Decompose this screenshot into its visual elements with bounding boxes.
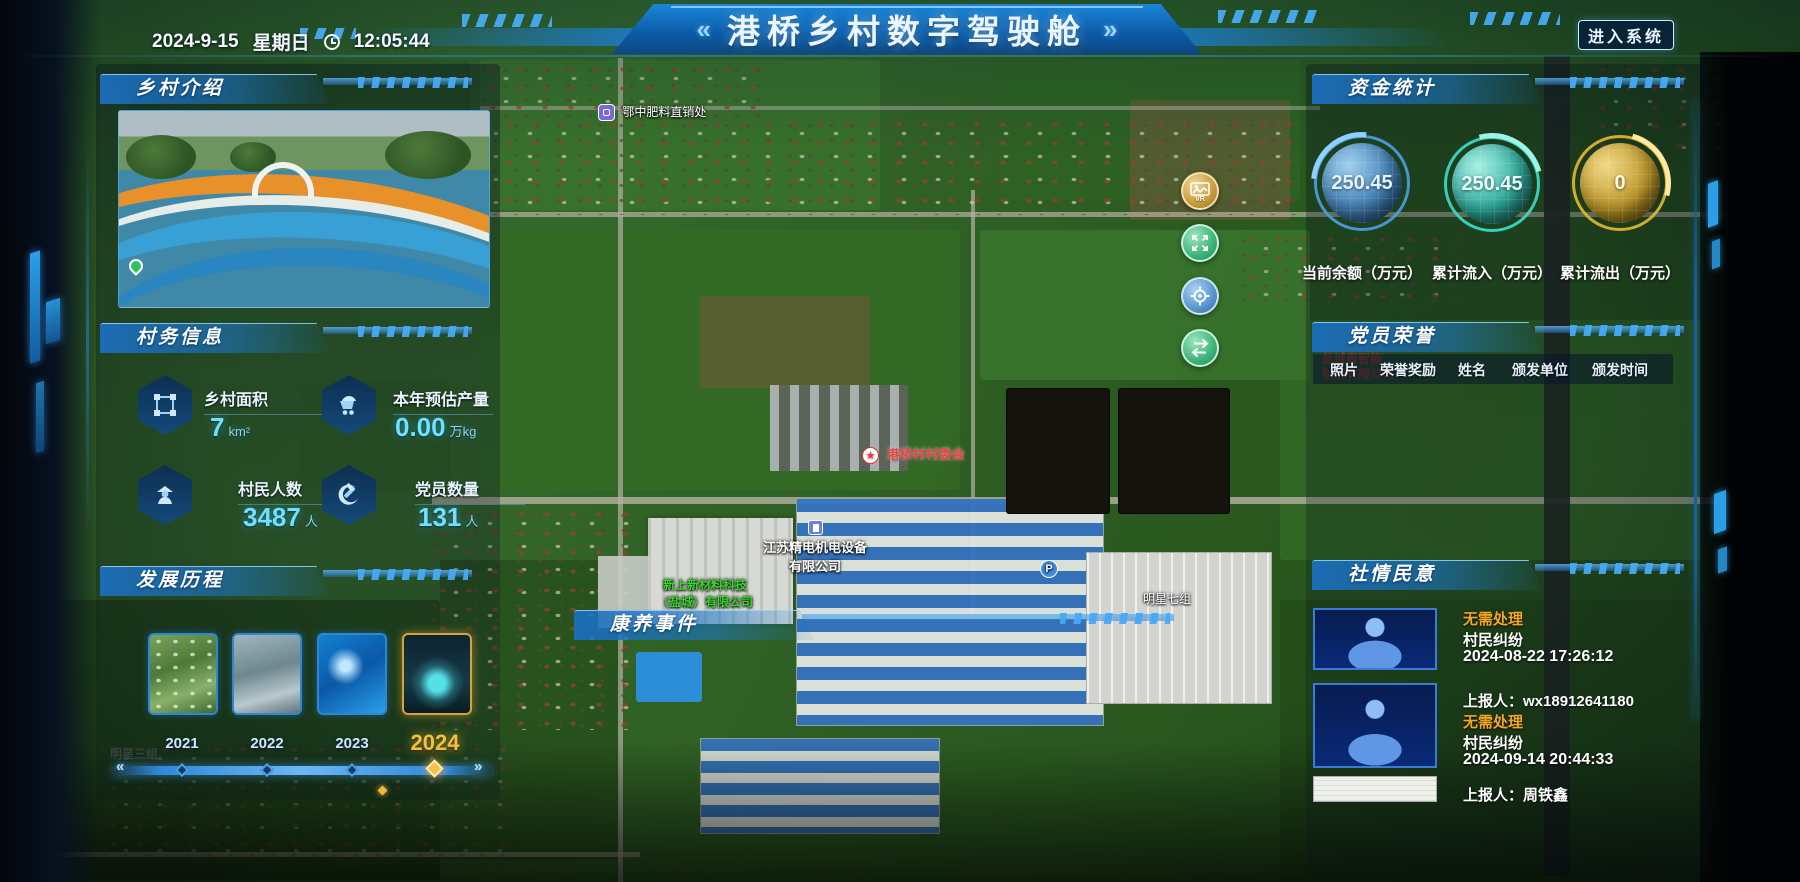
panel-title: 康养事件 (610, 610, 1174, 639)
gauge-value: 250.45 (1331, 172, 1392, 195)
swap-arrows-icon (1190, 338, 1210, 358)
star-pin-icon: ★ (862, 447, 879, 464)
area-icon (138, 375, 192, 435)
year-label-2023[interactable]: 2023 (335, 735, 368, 752)
party-icon (322, 465, 376, 525)
cart-icon (322, 375, 376, 435)
fish-pond (1118, 388, 1230, 514)
stat-value: 3487人 (243, 502, 318, 533)
building-poi-icon (808, 520, 823, 535)
stat-label: 本年预估产量 (393, 386, 493, 415)
column-photo: 照片 (1330, 360, 1358, 380)
chevron-right-icon: » (1103, 14, 1117, 45)
gauge-value: 0 (1614, 172, 1625, 195)
map-label-mingxing-7: 明星七组 (1143, 590, 1191, 607)
panel-title: 乡村介绍 (136, 74, 472, 103)
switch-map-button[interactable] (1181, 329, 1219, 367)
opinion-reporter: 上报人：wx18912641180 (1463, 690, 1634, 711)
map-label-company-jingdian: 江苏精电机电设备 有限公司 (745, 520, 885, 575)
expand-icon (1190, 233, 1210, 253)
year-label-2024-selected[interactable]: 2024 (411, 730, 460, 756)
map-label-village-committee: ★ 港桥村村委会 (862, 444, 965, 464)
panel-header-funds: 资金统计 (1312, 74, 1684, 104)
stat-value: 131人 (418, 502, 478, 533)
opinion-status: 无需处理 (1463, 608, 1523, 629)
locate-button[interactable] (1181, 277, 1219, 315)
map-label-company-xinshang: 新上新材料科技 （盐城）有限公司 (630, 576, 780, 610)
map-label-fertilizer-store: 鄂中肥料直销处 (598, 103, 706, 121)
chevron-left-icon: « (697, 14, 711, 45)
date-text: 2024-9-15 (152, 31, 239, 53)
stat-value: 7km² (210, 412, 250, 443)
opinion-time: 2024-08-22 17:26:12 (1463, 648, 1613, 666)
stat-label: 党员数量 (415, 476, 525, 505)
left-frame (0, 0, 100, 882)
weekday-text: 星期日 (253, 28, 310, 55)
opinion-photo[interactable] (1313, 608, 1437, 670)
village-photo (118, 110, 490, 308)
opinion-type: 村民纠纷 (1463, 629, 1523, 650)
opinion-photo-partial[interactable] (1313, 776, 1437, 802)
datetime-bar: 2024-9-15 星期日 12:05:44 (152, 28, 430, 55)
top-header: 2024-9-15 星期日 12:05:44 « 港桥乡村数字驾驶舱 » 进入系… (0, 0, 1800, 60)
gauge-inflow: 250.45 (1444, 136, 1540, 232)
panel-header-development: 发展历程 (100, 566, 472, 596)
year-label-2021[interactable]: 2021 (165, 735, 198, 752)
honor-table-header: 照片 荣誉奖励 姓名 颁发单位 颁发时间 (1313, 354, 1673, 384)
opinion-reporter: 上报人：周铁鑫 (1463, 784, 1568, 805)
panel-header-party-honor: 党员荣誉 (1312, 322, 1684, 352)
panel-title: 村务信息 (136, 323, 472, 352)
villager-icon (138, 465, 192, 525)
vr-label: VR (1183, 196, 1217, 203)
column-award: 荣誉奖励 (1380, 360, 1436, 380)
village-stats: 乡村面积 7km² 本年预估产量 0.00万kg 村民人数 3487人 (100, 360, 500, 560)
opinion-photo[interactable] (1313, 683, 1437, 768)
panel-header-public-opinion: 社情民意 (1312, 560, 1684, 590)
panel-header-village-intro: 乡村介绍 (100, 74, 472, 104)
opinion-time: 2024-09-14 20:44:33 (1463, 751, 1613, 769)
year-thumbnail-2021[interactable] (148, 633, 218, 715)
year-label-2022[interactable]: 2022 (250, 735, 283, 752)
right-frame (1700, 52, 1800, 882)
dashboard-screen: 鄂中肥料直销处 ★ 港桥村村委会 江苏精电机电设备 有限公司 新上新材料科技 （… (0, 0, 1800, 882)
panel-title: 资金统计 (1348, 74, 1684, 103)
timeline-right-arrow[interactable]: » (474, 758, 482, 775)
store-poi-icon (598, 104, 615, 121)
stat-value: 0.00万kg (395, 412, 476, 443)
year-thumbnail-2022[interactable] (232, 633, 302, 715)
panel-header-health-events: 康养事件 (574, 610, 1174, 640)
time-text: 12:05:44 (354, 31, 430, 53)
panel-title: 社情民意 (1348, 560, 1684, 589)
column-issuer: 颁发单位 (1512, 360, 1568, 380)
year-thumbnail-2024[interactable] (402, 633, 472, 715)
fullscreen-button[interactable] (1181, 224, 1219, 262)
parking-poi-icon: P (1040, 560, 1062, 578)
target-icon (1189, 285, 1211, 307)
panel-title: 党员荣誉 (1348, 322, 1684, 351)
page-title: 港桥乡村数字驾驶舱 (727, 5, 1087, 53)
clock-icon (324, 34, 340, 50)
opinion-type: 村民纠纷 (1463, 732, 1523, 753)
vr-panorama-button[interactable]: VR (1181, 172, 1219, 210)
gauge-outflow: 0 (1572, 135, 1668, 231)
panel-title: 发展历程 (136, 566, 472, 595)
gauge-balance: 250.45 (1314, 135, 1410, 231)
column-date: 颁发时间 (1592, 360, 1648, 380)
opinion-status: 无需处理 (1463, 711, 1523, 732)
panel-header-village-info: 村务信息 (100, 323, 472, 353)
timeline-left-arrow[interactable]: « (116, 758, 124, 775)
year-thumbnail-2023[interactable] (317, 633, 387, 715)
column-name: 姓名 (1458, 360, 1486, 380)
gauge-label-outflow: 累计流出（万元） (1540, 262, 1700, 283)
enter-system-button[interactable]: 进入系统 (1578, 20, 1674, 50)
gauge-value: 250.45 (1461, 173, 1522, 196)
opinion-list[interactable]: 无需处理 村民纠纷 2024-08-22 17:26:12 上报人：wx1891… (1313, 606, 1705, 836)
title-banner: « 港桥乡村数字驾驶舱 » (612, 4, 1202, 54)
fish-pond (1006, 388, 1110, 514)
